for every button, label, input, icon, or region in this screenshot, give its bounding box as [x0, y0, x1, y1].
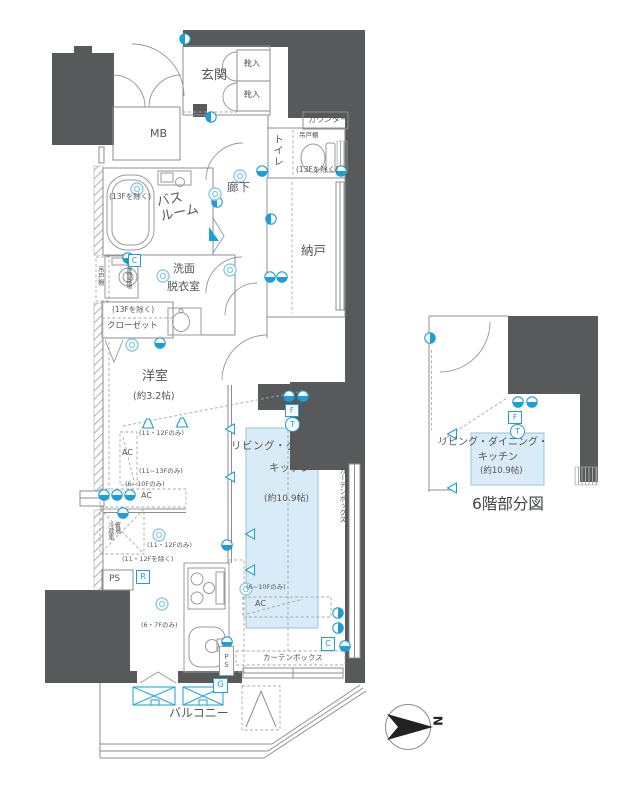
ps-label-left: PS — [109, 574, 120, 584]
note-only-11-12f-b: (11・12Fのみ) — [147, 542, 192, 549]
note-exc-11-12f: (11・12Fを除く) — [122, 556, 173, 563]
fridge-line2: 置場 — [113, 522, 120, 534]
room-label-hallway: 廊下 — [227, 181, 250, 194]
room-label-toilet: トイレ — [271, 134, 282, 180]
hanging-cupboard-label-laundry: 吊戸棚 — [96, 266, 103, 298]
note-exc13f-closet: (13Fを除く) — [112, 306, 154, 314]
balcony-hatch-boxes — [133, 687, 223, 705]
symbol-t-ldk: T — [285, 417, 300, 432]
balcony-railing — [100, 683, 366, 758]
symbol-c-washroom: C — [128, 254, 141, 267]
note-only-6-7f: (6・7Fのみ) — [141, 622, 178, 629]
note-only-6-10f-b: (6~10Fのみ) — [246, 584, 286, 591]
shoe-box-label-1: 靴入 — [244, 60, 260, 69]
note-only-6-10f-a: (6~10Fのみ) — [125, 481, 165, 488]
symbol-r-kitchen: R — [136, 570, 150, 584]
washroom-line1: 洗面 — [173, 263, 195, 275]
ps-box-bottom: PS — [219, 646, 234, 676]
symbol-f-ldk: F — [285, 404, 299, 417]
ldk-size-label: (約10.9帖) — [264, 494, 309, 504]
partial-ldk-line1: リビング・ダイニング・ — [438, 437, 548, 448]
floorplan-page: 玄関 靴入 靴入 MB カウンター トイレ 吊戸棚 (13Fを除く) 廊下 バス… — [0, 0, 628, 800]
room-label-balcony: バルコニー — [169, 707, 229, 720]
western-size-label: (約3.2帖) — [133, 392, 175, 403]
note-only-11-12f-a: (11・12Fのみ) — [139, 430, 184, 437]
washroom-line2: 脱衣室 — [167, 281, 200, 293]
curtain-box-label-horizontal: カーテンボックス — [263, 654, 323, 662]
counter-label: カウンター — [308, 116, 348, 125]
partial-ldk-size: (約10.9帖) — [480, 467, 523, 477]
fridge-label: 冷蔵庫 置場 — [106, 522, 119, 552]
symbol-c-ldk: C — [321, 637, 335, 651]
north-label: N — [430, 716, 443, 726]
room-label-genkan: 玄関 — [201, 69, 227, 84]
note-exc13f-bath: (13Fを除く) — [109, 193, 151, 201]
symbol-f-partial: F — [508, 411, 522, 424]
north-arrow-icon — [386, 705, 434, 750]
intercom-icon — [209, 227, 219, 241]
partial-ldk-line2: キッチン — [478, 452, 518, 463]
symbol-t-partial: T — [510, 424, 525, 439]
room-label-closet: クローゼット — [107, 322, 158, 332]
note-exc13f-toilet: (13Fを除く) — [296, 166, 338, 174]
ldk-label-line1: リビング・ダイニング・ — [231, 441, 352, 453]
room-label-storage: 納戸 — [301, 244, 326, 258]
shoe-box-label-2: 靴入 — [244, 91, 260, 100]
partial-plan-title: 6階部分図 — [472, 496, 544, 513]
curtain-box-label-vertical: カーテンボックス — [338, 467, 346, 571]
ac-label-western-vertical: AC — [122, 449, 133, 458]
symbol-g-balcony: G — [213, 678, 228, 693]
ac-label-ldk: AC — [255, 600, 266, 609]
ps-label-bottom: PS — [223, 653, 231, 669]
room-label-mb: MB — [150, 128, 167, 140]
hanging-cupboard-label-toilet: 吊戸棚 — [299, 132, 319, 139]
ldk-label-line2: キッチン — [269, 463, 311, 475]
ac-label-western-horizontal: AC — [141, 492, 152, 501]
room-label-western: 洋室 — [142, 370, 168, 385]
note-only-11-13f: (11~13Fのみ) — [139, 468, 183, 475]
